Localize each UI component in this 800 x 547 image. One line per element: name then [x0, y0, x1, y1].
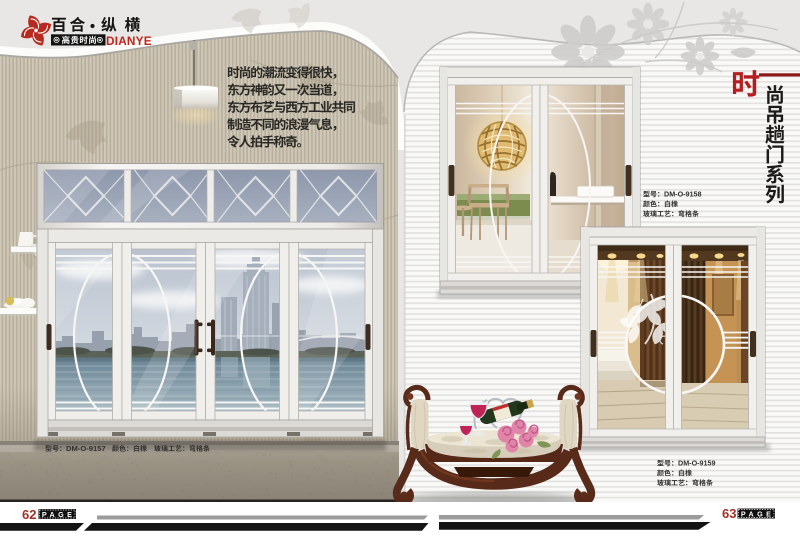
svg-text:DM-O-9157: DM-O-9157: [66, 444, 106, 453]
svg-text:DM-O-9159: DM-O-9159: [678, 459, 716, 468]
svg-text:PAGE: PAGE: [42, 510, 75, 519]
svg-text:62: 62: [22, 507, 36, 522]
svg-text:PAGE: PAGE: [741, 510, 774, 519]
svg-text:DM-O-9158: DM-O-9158: [664, 190, 702, 199]
svg-text:DIANYE: DIANYE: [106, 34, 152, 48]
svg-text:63: 63: [722, 506, 736, 521]
